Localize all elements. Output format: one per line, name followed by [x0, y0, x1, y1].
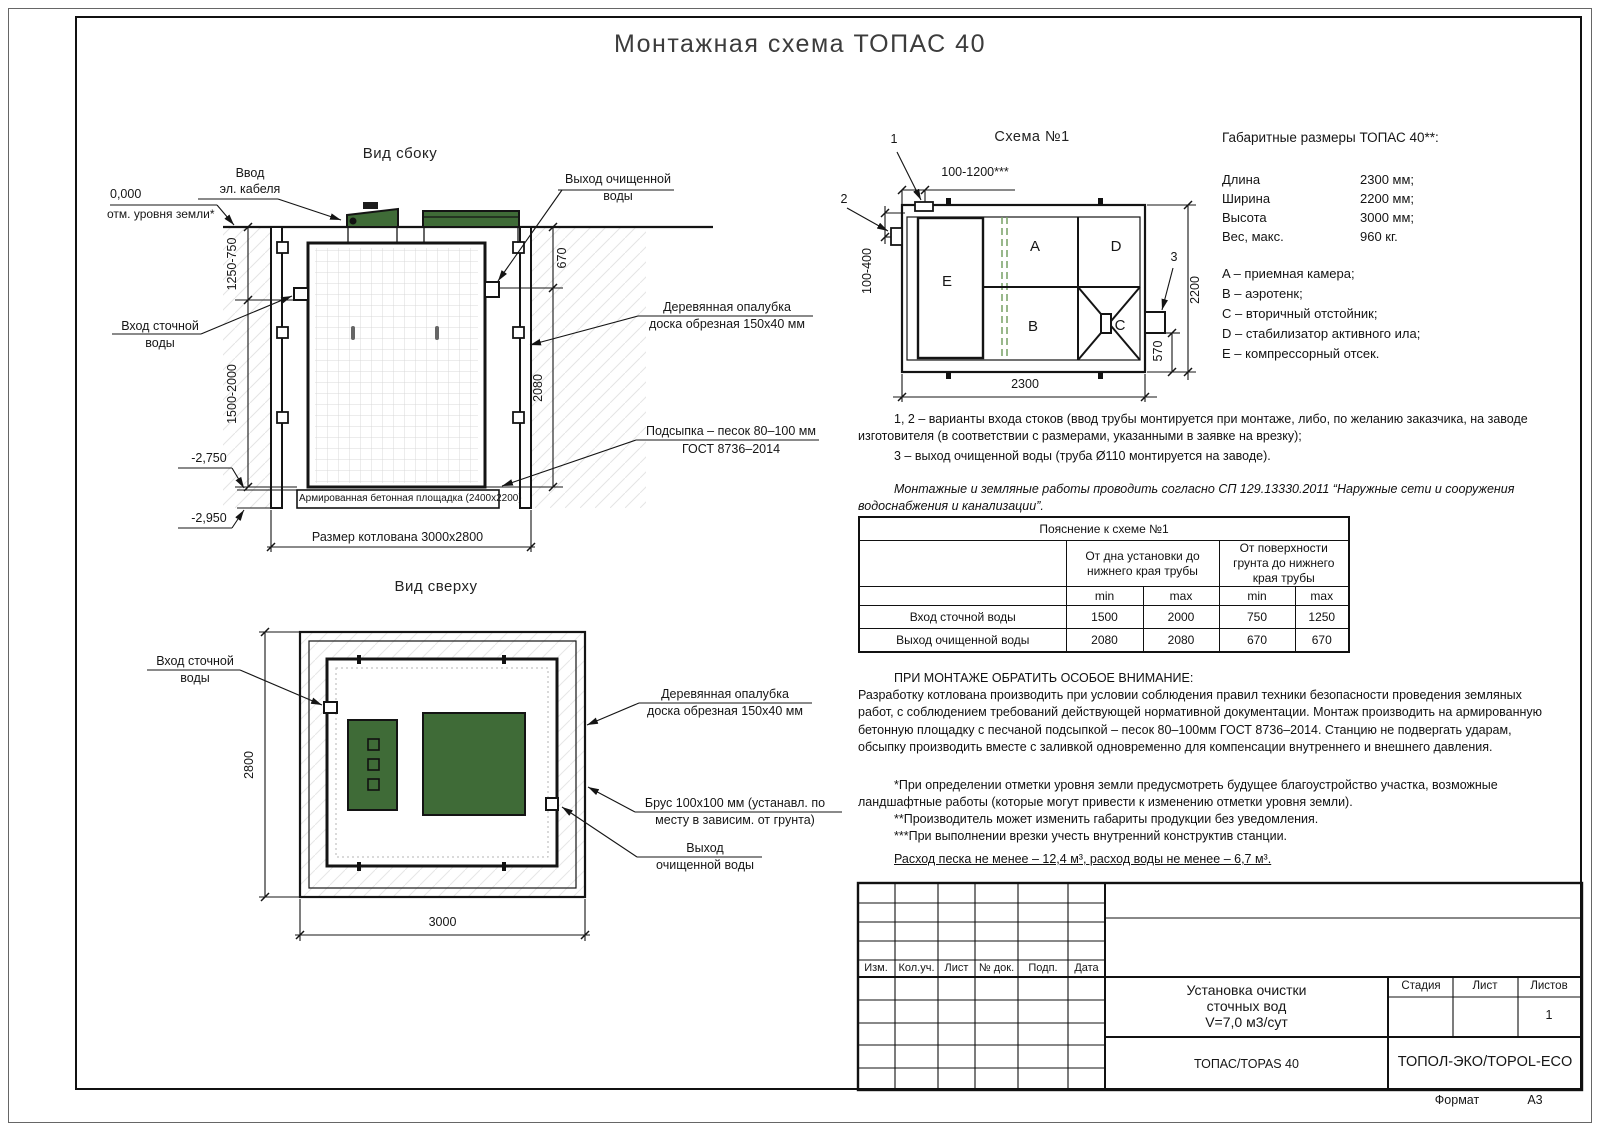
schema-title: Схема №1 [959, 129, 1105, 145]
table-min1: min [1066, 587, 1143, 606]
attention-body: Разработку котлована производить при усл… [858, 687, 1552, 756]
dim-2200: 2200 [1188, 276, 1202, 304]
note-variants: 1, 2 – варианты входа стоков (ввод трубы… [858, 411, 1548, 446]
inlet-variant-2 [891, 228, 902, 245]
compartment-C: C [1115, 317, 1126, 334]
attention-title: ПРИ МОНТАЖЕ ОБРАТИТЬ ОСОБОЕ ВНИМАНИЕ: [894, 670, 1193, 687]
top-outlet-label2: очищенной воды [638, 858, 772, 873]
table-cell: 2080 [1143, 629, 1219, 653]
note-star2: **Производитель может изменить габариты … [858, 811, 1552, 828]
table-group1: От дна установки до нижнего края трубы [1066, 541, 1219, 587]
stamp-doc-line3: V=7,0 м3/сут [1106, 1014, 1387, 1031]
clean-water-outlet-label: Выход очищенной [558, 172, 678, 187]
top-view-dim-labels: 2800 [242, 751, 256, 779]
top-view-title: Вид сверху [363, 578, 509, 595]
stamp-col-ndok: № док. [975, 962, 1018, 975]
dim-1250-750: 1250-750 [225, 238, 239, 291]
clean-water-outlet-label2: воды [558, 189, 678, 204]
inlet-stub [294, 288, 308, 300]
schema-structure [891, 198, 1165, 379]
top-formwork-label: Деревянная опалубка [640, 687, 810, 702]
compartment-E: E [942, 273, 952, 290]
spec-label-weight: Вес, макс. [1222, 229, 1284, 244]
beam-label2: месту в зависим. от грунта) [640, 813, 830, 828]
legend-D: D – стабилизатор активного ила; [1222, 326, 1420, 341]
stamp-col-izm: Изм. [857, 962, 895, 975]
side-view-structure [223, 202, 713, 508]
dim-100-1200: 100-1200*** [925, 165, 1025, 180]
cable-entry-label: Ввод [212, 166, 288, 181]
sewage-inlet-label2: воды [108, 336, 212, 351]
pit-size-label: Размер котлована 3000x2800 [290, 530, 505, 545]
table-title: Пояснение к схеме №1 [859, 517, 1349, 541]
table-max2: max [1295, 587, 1349, 606]
note-star3: ***При выполнении врезки учесть внутренн… [858, 828, 1552, 845]
stamp-product: ТОПАС/TOPAS 40 [1106, 1057, 1387, 1072]
zero-level-mark: 0,000 [110, 187, 141, 202]
schema-drawing: A D B C E 100-400 2200 570 [825, 118, 1255, 418]
formwork-label2: доска обрезная 150x40 мм [630, 317, 824, 332]
spec-label-length: Длина [1222, 172, 1260, 187]
stamp-col-koluch: Кол.уч. [895, 962, 938, 975]
drawing-sheet: Монтажная схема ТОПАС 40 [0, 0, 1600, 1131]
top-view-drawing: 2800 [120, 555, 860, 955]
table-cell: 670 [1295, 629, 1349, 653]
zero-level-note: отм. уровня земли* [107, 207, 215, 221]
top-inlet-label2: воды [143, 671, 247, 686]
table-group2: От поверхности грунта до нижнего края тр… [1219, 541, 1349, 587]
compressor-hatch-cover [348, 720, 397, 810]
schema-dimensions [847, 152, 1196, 402]
top-formwork-label2: доска обрезная 150x40 мм [628, 704, 822, 719]
table-cell: 750 [1219, 606, 1295, 629]
stamp-doc-line1: Установка очистки [1106, 982, 1387, 999]
top-view-structure [300, 632, 585, 897]
callout-1: 1 [886, 132, 902, 147]
dim-570: 570 [1151, 341, 1165, 362]
table-row-label: Выход очищенной воды [859, 629, 1066, 653]
sheet-title: Монтажная схема ТОПАС 40 [500, 30, 1100, 59]
stamp-doc-line2: сточных вод [1106, 998, 1387, 1015]
dim-2800: 2800 [242, 751, 256, 779]
legend-B: B – аэротенк; [1222, 286, 1303, 301]
compartment-D: D [1111, 238, 1122, 255]
format-value: А3 [1513, 1093, 1557, 1108]
spec-value-length: 2300 мм; [1360, 172, 1414, 187]
legend-C: C – вторичный отстойник; [1222, 306, 1377, 321]
specs-heading: Габаритные размеры ТОПАС 40**: [1222, 130, 1439, 146]
dim-100-400: 100-400 [860, 248, 874, 294]
outlet-square [546, 798, 558, 810]
dim-2080: 2080 [531, 374, 545, 402]
dim-2300: 2300 [985, 377, 1065, 392]
concrete-slab-label: Армированная бетонная площадка (2400x220… [299, 493, 495, 505]
table-cell [859, 587, 1066, 606]
table-cell [859, 541, 1066, 587]
compartment-B: B [1028, 318, 1038, 335]
dim-3000: 3000 [300, 915, 585, 930]
table-min2: min [1219, 587, 1295, 606]
stamp-col-data: Дата [1068, 962, 1105, 975]
sewage-inlet-label: Вход сточной [108, 319, 212, 334]
spec-value-weight: 960 кг. [1360, 229, 1398, 244]
table-cell: 670 [1219, 629, 1295, 653]
right-lid [423, 211, 519, 227]
level-2750: -2,750 [181, 451, 237, 466]
inlet-variant-1 [915, 202, 933, 211]
level-2950: -2,950 [181, 511, 237, 526]
dim-670: 670 [555, 248, 569, 269]
top-inlet-label: Вход сточной [143, 654, 247, 669]
vent-cap [363, 202, 378, 209]
cable-entry-label2: эл. кабеля [198, 182, 302, 197]
stamp-sheets-value: 1 [1517, 1008, 1581, 1023]
dim-1500-2000: 1500-2000 [225, 364, 239, 424]
sand-bedding-label2: ГОСТ 8736–2014 [634, 442, 828, 457]
callout-3: 3 [1166, 250, 1182, 265]
spec-value-width: 2200 мм; [1360, 191, 1414, 206]
schema-letters: A D B C E 100-400 2200 570 [860, 238, 1202, 361]
stamp-stage-header: Стадия [1389, 980, 1453, 994]
table-cell: 1250 [1295, 606, 1349, 629]
table-cell: 2080 [1066, 629, 1143, 653]
stamp-sheets-header: Листов [1517, 980, 1581, 994]
stamp-company: ТОПОЛ-ЭКО/TOPOL-ECO [1389, 1054, 1581, 1071]
spec-value-height: 3000 мм; [1360, 210, 1414, 225]
format-label: Формат [1422, 1093, 1492, 1108]
callout-2: 2 [836, 192, 852, 207]
note-star1: *При определении отметки уровня земли пр… [858, 777, 1552, 812]
legend-E: E – компрессорный отсек. [1222, 346, 1379, 361]
outlet-stub [485, 282, 499, 297]
main-hatch-cover [423, 713, 525, 815]
stamp-col-podp: Подп. [1018, 962, 1068, 975]
note-sp: Монтажные и земляные работы проводить со… [858, 481, 1548, 516]
schema-note-table: Пояснение к схеме №1 От дна установки до… [858, 516, 1350, 653]
spec-label-height: Высота [1222, 210, 1267, 225]
stamp-sheet-header: Лист [1453, 980, 1517, 994]
compartment-A: A [1030, 238, 1040, 255]
table-max1: max [1143, 587, 1219, 606]
note-outlet: 3 – выход очищенной воды (труба Ø110 мон… [858, 448, 1548, 465]
stamp-col-list: Лист [938, 962, 975, 975]
sand-bedding-label: Подсыпка – песок 80–100 мм [634, 424, 828, 439]
beam-label: Брус 100x100 мм (устанавл. по [630, 796, 840, 811]
table-row-label: Вход сточной воды [859, 606, 1066, 629]
outlet-3 [1145, 312, 1165, 333]
table-cell: 1500 [1066, 606, 1143, 629]
inlet-square [324, 702, 337, 713]
note-consumption: Расход песка не менее – 12,4 м³, расход … [894, 851, 1271, 868]
spec-label-width: Ширина [1222, 191, 1270, 206]
legend-A: A – приемная камера; [1222, 266, 1355, 281]
side-view-title: Вид сбоку [327, 145, 473, 162]
table-cell: 2000 [1143, 606, 1219, 629]
formwork-label: Деревянная опалубка [642, 300, 812, 315]
top-outlet-label: Выход [650, 841, 760, 856]
